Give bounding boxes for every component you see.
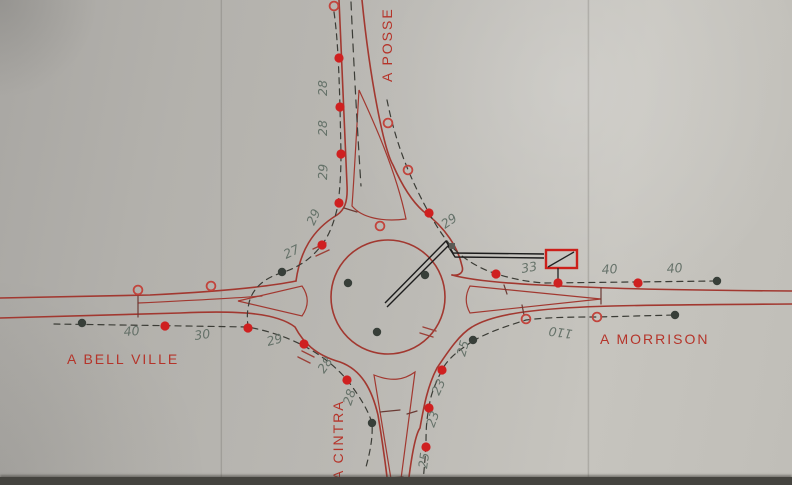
road-centerline-top <box>351 2 361 186</box>
open-circle-marker <box>207 282 216 291</box>
hatch-mark <box>298 357 310 363</box>
survey-line-left <box>54 324 372 467</box>
measurement-label: 23 <box>423 409 443 429</box>
red-dot-marker <box>421 442 430 451</box>
central-island-circle <box>331 240 445 354</box>
measurement-label: 33 <box>520 258 538 276</box>
photographed-paper-plan: 282829292729334040110403029282825232325 … <box>0 0 792 485</box>
measurement-label: 40 <box>123 323 140 339</box>
measurement-label: 29 <box>303 206 323 227</box>
roundabout-plan-drawing: 282829292729334040110403029282825232325 … <box>0 0 792 485</box>
road-label-bell-ville: A BELL VILLE <box>67 351 179 367</box>
measurement-label: 30 <box>193 326 211 343</box>
measurement-label: 25 <box>415 452 432 470</box>
open-circle-marker <box>376 222 385 231</box>
open-circle-marker <box>522 315 531 324</box>
pencil-measurements: 282829292729334040110403029282825232325 <box>123 80 683 469</box>
measurement-label: 28 <box>315 80 330 96</box>
open-circle-marker <box>384 119 393 128</box>
open-circle-marker <box>404 166 413 175</box>
open-circle-marker <box>330 2 339 11</box>
leader-and-sign <box>385 241 577 307</box>
red-dot-marker <box>336 149 345 158</box>
dark-dot-marker <box>373 328 381 336</box>
measurement-label: 28 <box>314 354 335 376</box>
hatch-mark <box>423 327 436 331</box>
dark-dot-marker <box>368 419 376 427</box>
red-dot-marker <box>633 278 642 287</box>
measurement-label: 29 <box>265 330 284 349</box>
dark-dot-marker <box>344 279 352 287</box>
road-label-posse: A POSSE <box>379 7 395 82</box>
dark-dot-marker <box>421 271 429 279</box>
red-dot-marker <box>424 208 433 217</box>
road-labels: A POSSE A BELL VILLE A MORRISON A CINTRA <box>67 7 709 480</box>
red-dot-marker <box>317 240 326 249</box>
photo-bottom-edge <box>0 477 792 485</box>
dark-dot-marker <box>713 277 721 285</box>
red-dot-marker <box>334 198 343 207</box>
measurement-label: 28 <box>315 120 330 136</box>
survey-line-top-right <box>387 100 717 283</box>
splitter-island-top <box>352 90 406 220</box>
lane-tick <box>380 410 400 412</box>
measurement-label: 40 <box>666 260 683 276</box>
measurement-label: 110 <box>548 324 574 342</box>
hatch-marks <box>298 243 436 363</box>
red-dot-marker <box>437 365 446 374</box>
leader-line <box>385 241 544 303</box>
red-dot-marker <box>342 375 351 384</box>
red-dot-marker <box>243 323 252 332</box>
road-edge-top-left <box>296 0 347 281</box>
road-label-cintra: A CINTRA <box>330 399 346 480</box>
lane-tick <box>522 305 524 315</box>
square-dot-marker <box>449 243 455 249</box>
survey-markers <box>78 2 721 452</box>
open-circle-marker <box>134 286 143 295</box>
sign-box-diagonal <box>548 252 574 267</box>
hatch-mark <box>316 250 329 256</box>
road-edge-top-right <box>362 0 463 275</box>
red-dot-marker <box>160 321 169 330</box>
hatch-mark <box>302 351 314 357</box>
lane-tick <box>407 411 417 414</box>
red-dot-marker <box>553 278 562 287</box>
measurement-label: 27 <box>281 241 302 261</box>
dark-dot-marker <box>278 268 286 276</box>
dark-dot-marker <box>78 319 86 327</box>
splitter-island-left <box>238 286 307 316</box>
roads-layer <box>0 0 792 485</box>
road-label-morrison: A MORRISON <box>600 331 709 347</box>
measurement-label: 29 <box>315 164 331 180</box>
red-dot-marker <box>334 53 343 62</box>
red-dot-marker <box>335 102 344 111</box>
measurement-label: 40 <box>601 261 618 277</box>
splitter-island-right <box>466 286 601 313</box>
red-dot-marker <box>491 269 500 278</box>
road-edge-right-top <box>452 275 792 291</box>
red-dot-marker <box>299 339 308 348</box>
dark-dot-marker <box>671 311 679 319</box>
